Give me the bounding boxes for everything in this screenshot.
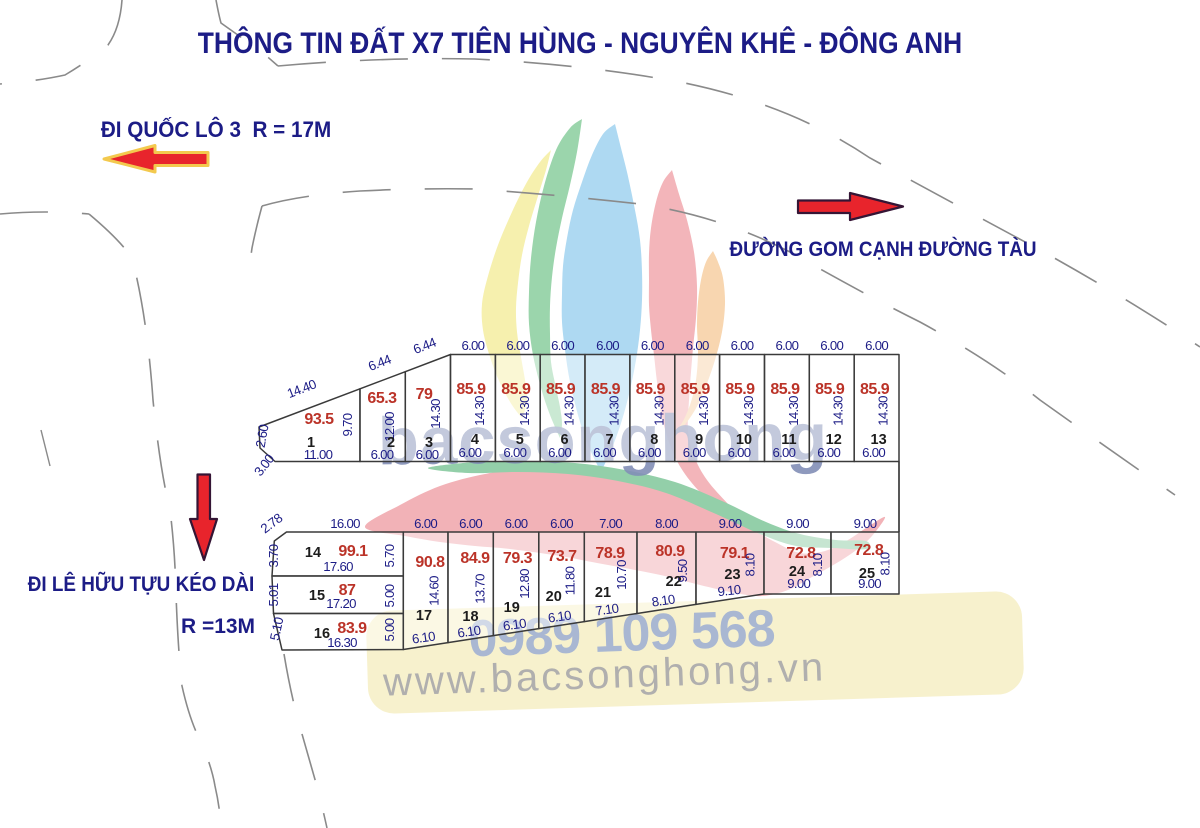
svg-text:6.00: 6.00: [505, 516, 528, 531]
svg-text:9.00: 9.00: [787, 576, 810, 591]
svg-text:85.9: 85.9: [636, 381, 666, 398]
svg-text:6.00: 6.00: [683, 445, 706, 460]
svg-text:93.5: 93.5: [304, 411, 334, 428]
svg-text:14.60: 14.60: [427, 576, 442, 606]
svg-text:14.30: 14.30: [428, 399, 443, 429]
svg-text:8.10: 8.10: [810, 553, 825, 576]
svg-text:22: 22: [666, 574, 682, 590]
svg-text:5.00: 5.00: [382, 618, 397, 641]
svg-text:85.9: 85.9: [456, 381, 486, 398]
svg-text:11.80: 11.80: [563, 566, 578, 595]
svg-text:14.30: 14.30: [741, 396, 756, 426]
svg-text:65.3: 65.3: [367, 390, 397, 407]
svg-text:14.30: 14.30: [607, 396, 622, 426]
svg-text:6.00: 6.00: [461, 338, 484, 353]
svg-text:8.10: 8.10: [743, 553, 758, 576]
svg-text:9.00: 9.00: [719, 516, 742, 531]
svg-text:9.00: 9.00: [854, 516, 877, 531]
svg-text:6.00: 6.00: [596, 338, 619, 353]
svg-text:17.20: 17.20: [326, 596, 356, 611]
svg-text:14.30: 14.30: [472, 396, 487, 426]
svg-text:6.00: 6.00: [638, 445, 661, 460]
svg-text:5.01: 5.01: [266, 583, 281, 606]
svg-text:14.30: 14.30: [517, 396, 532, 426]
svg-text:6.00: 6.00: [371, 447, 394, 462]
svg-text:17: 17: [416, 608, 432, 624]
svg-text:21: 21: [595, 585, 611, 601]
svg-text:THÔNG TIN ĐẤT X7 TIÊN HÙNG - N: THÔNG TIN ĐẤT X7 TIÊN HÙNG - NGUYÊN KHÊ …: [198, 25, 962, 59]
svg-text:14.30: 14.30: [562, 396, 577, 426]
svg-text:90.8: 90.8: [415, 554, 445, 571]
svg-text:6.00: 6.00: [817, 445, 840, 460]
svg-text:79.3: 79.3: [503, 550, 533, 567]
svg-text:6.10: 6.10: [547, 607, 572, 625]
svg-text:6.00: 6.00: [775, 338, 798, 353]
svg-text:6.00: 6.00: [728, 445, 751, 460]
svg-text:85.9: 85.9: [815, 381, 845, 398]
svg-text:14.30: 14.30: [876, 396, 891, 426]
svg-text:6.00: 6.00: [414, 516, 437, 531]
svg-text:3.70: 3.70: [266, 544, 281, 567]
svg-text:9.70: 9.70: [340, 413, 355, 436]
svg-text:80.9: 80.9: [655, 543, 685, 560]
svg-text:6.00: 6.00: [506, 338, 529, 353]
svg-text:ĐI LÊ HỮU TỰU KÉO DÀI: ĐI LÊ HỮU TỰU KÉO DÀI: [28, 571, 255, 596]
svg-text:6.00: 6.00: [593, 445, 616, 460]
svg-text:85.9: 85.9: [681, 381, 711, 398]
svg-text:5.70: 5.70: [382, 544, 397, 567]
svg-text:84.9: 84.9: [460, 550, 490, 567]
svg-text:78.9: 78.9: [595, 545, 625, 562]
svg-text:85.9: 85.9: [725, 381, 755, 398]
svg-text:6.00: 6.00: [862, 445, 885, 460]
svg-text:13.70: 13.70: [473, 574, 488, 604]
svg-text:6.00: 6.00: [686, 338, 709, 353]
svg-text:6.00: 6.00: [503, 445, 526, 460]
svg-text:17.60: 17.60: [323, 559, 353, 574]
svg-text:14.30: 14.30: [786, 396, 801, 426]
svg-text:85.9: 85.9: [546, 381, 576, 398]
svg-text:5.00: 5.00: [382, 584, 397, 607]
svg-text:14: 14: [305, 545, 321, 561]
svg-text:6.00: 6.00: [459, 516, 482, 531]
svg-text:20: 20: [546, 589, 562, 605]
svg-text:6.00: 6.00: [551, 338, 574, 353]
svg-text:6.00: 6.00: [641, 338, 664, 353]
svg-text:23: 23: [724, 567, 740, 583]
svg-text:R =13M: R =13M: [181, 615, 255, 638]
svg-text:85.9: 85.9: [860, 381, 890, 398]
svg-text:16.00: 16.00: [330, 516, 360, 531]
svg-text:10.70: 10.70: [614, 560, 629, 590]
svg-text:6.10: 6.10: [502, 615, 527, 633]
svg-text:6.10: 6.10: [411, 628, 436, 646]
svg-text:8.10: 8.10: [651, 591, 676, 609]
svg-text:6.00: 6.00: [416, 447, 439, 462]
svg-text:6.00: 6.00: [731, 338, 754, 353]
svg-text:12.80: 12.80: [517, 569, 532, 599]
svg-text:7.10: 7.10: [595, 600, 620, 618]
svg-text:ĐƯỜNG GOM CẠNH ĐƯỜNG TÀU: ĐƯỜNG GOM CẠNH ĐƯỜNG TÀU: [729, 236, 1036, 261]
svg-text:9.00: 9.00: [786, 516, 809, 531]
svg-text:14.30: 14.30: [696, 396, 711, 426]
svg-text:8.00: 8.00: [655, 516, 678, 531]
svg-text:6.00: 6.00: [865, 338, 888, 353]
svg-text:6.00: 6.00: [820, 338, 843, 353]
svg-text:6.00: 6.00: [550, 516, 573, 531]
svg-text:6.10: 6.10: [457, 622, 482, 640]
svg-text:85.9: 85.9: [770, 381, 800, 398]
svg-text:85.9: 85.9: [501, 381, 531, 398]
svg-text:8.10: 8.10: [878, 552, 893, 575]
svg-text:7.00: 7.00: [599, 516, 622, 531]
svg-text:11.00: 11.00: [304, 447, 333, 462]
svg-text:99.1: 99.1: [338, 543, 368, 560]
svg-text:9.10: 9.10: [717, 582, 742, 599]
svg-text:19: 19: [504, 600, 520, 616]
svg-text:9.00: 9.00: [858, 576, 881, 591]
svg-text:6.00: 6.00: [772, 445, 795, 460]
svg-text:ĐI QUỐC LÔ 3 R = 17M: ĐI QUỐC LÔ 3 R = 17M: [101, 115, 331, 142]
svg-text:15: 15: [309, 588, 325, 604]
svg-text:85.9: 85.9: [591, 381, 621, 398]
svg-text:16.30: 16.30: [327, 635, 357, 650]
svg-text:14.30: 14.30: [831, 396, 846, 426]
svg-text:14.30: 14.30: [651, 396, 666, 426]
svg-text:6.00: 6.00: [458, 445, 481, 460]
svg-text:6.00: 6.00: [548, 445, 571, 460]
svg-text:73.7: 73.7: [547, 548, 577, 565]
